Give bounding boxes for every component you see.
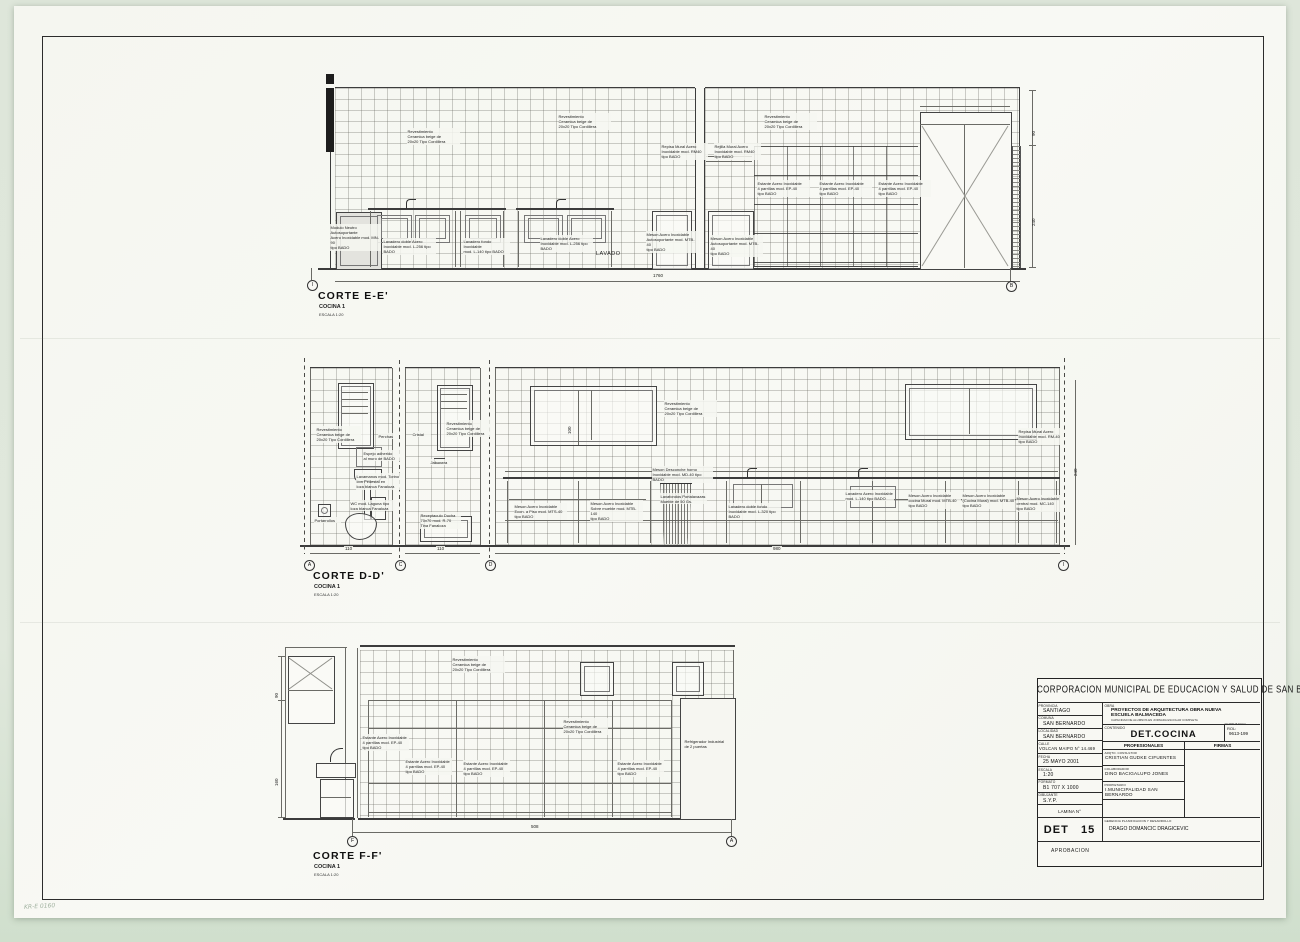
field-value: S.Y.P.: [1037, 797, 1102, 803]
dimension-value: 1760: [652, 273, 664, 278]
field-fecha: FECHA 25 MAYO 2001: [1037, 754, 1103, 767]
counter-leg: [726, 481, 727, 543]
organization-name: CORPORACION MUNICIPAL DE EDUCACION Y SAL…: [1037, 684, 1260, 695]
window-mullion: [591, 390, 592, 440]
callout: Meson Desconche horno Inoxidable mod. MD…: [652, 466, 713, 483]
window-inner: [584, 666, 610, 692]
counter-leg: [650, 481, 651, 543]
wall-edge-line: [495, 368, 496, 545]
axis-leader: [731, 819, 732, 836]
callout: Repisa Mural Acero Inoxidable mod. RM-40…: [1018, 428, 1063, 445]
dimension-line: [310, 553, 392, 554]
dimension-line: [405, 553, 480, 554]
wall-edge-line: [285, 648, 286, 818]
counter-leg: [800, 481, 801, 543]
dimension-tick: [1029, 267, 1036, 268]
dimension-line: [335, 281, 1020, 282]
scanned-sheet: 1760 90 240 I B CORTE E-E' COCINA 1 ESCA…: [0, 0, 1300, 942]
callout: Estante Acero Inoxidable 4 parrillas mod…: [819, 180, 872, 197]
grid-axis-bubble: D: [485, 560, 496, 571]
dimension-value-wrap: 240: [1078, 462, 1086, 480]
callout: Jabonera: [430, 459, 453, 465]
field-dibujante: DIBUJANTE S.Y.P.: [1037, 793, 1103, 805]
section-room: COCINA 1: [314, 864, 340, 870]
room-name-label: LAVADO: [596, 251, 621, 257]
dimension-value: 90: [274, 693, 279, 698]
axis-leader: [352, 819, 353, 836]
sink-basin-inner: [381, 218, 408, 239]
callout: Portarrollos: [314, 517, 341, 523]
row-propietario: PROPIETARIO I.MUNICIPALIDAD SAN BERNARDO: [1103, 782, 1185, 800]
field-value: SAN BERNARDO: [1037, 733, 1102, 739]
callout: Lavadero Acero Inoxidable mod. L-140 tip…: [845, 490, 894, 501]
field-value: SANTIAGO: [1037, 708, 1102, 714]
callout: Estante Acero Inoxidable 4 parrillas mod…: [463, 760, 510, 777]
aprobacion-label: APROBACION: [1051, 848, 1260, 854]
shelf-post: [612, 700, 613, 817]
aprobacion-cell: APROBACION: [1037, 842, 1260, 865]
section-title: CORTE E-E': [318, 290, 389, 302]
callout: Lavadero doble Acero Inoxidable mod. L-2…: [540, 235, 593, 252]
wall-poche: [326, 74, 334, 84]
contenido-cell: CONTENIDO DET.COCINA: [1103, 725, 1225, 742]
dimension-tick: [1029, 145, 1036, 146]
paper-crease: [20, 622, 1280, 623]
dimension-value-wrap: 240: [1036, 212, 1044, 230]
field-calle: CALLE VOLCAN MAIPO N° 14.469: [1037, 741, 1103, 754]
field-value: 1:20: [1037, 772, 1102, 778]
lamina-number-cell: DET 15: [1037, 818, 1103, 842]
section-room: COCINA 1: [314, 584, 340, 590]
dimension-line: [1075, 380, 1076, 545]
callout: Lavadero doble Acero Inoxidable mod. L-2…: [383, 238, 436, 255]
wall-edge-line: [405, 368, 406, 545]
dimension-value-wrap: 160: [279, 772, 287, 790]
callout: Modulo Neutro Autosoportante Acero Inoxi…: [330, 224, 381, 251]
callout: Revestimiento Ceramica beige de 20x20 Ti…: [764, 113, 817, 130]
wall-top-line: [310, 367, 392, 368]
obra-cell: OBRA PROYECTOS DE ARQUITECTURA OBRA NUEV…: [1103, 703, 1260, 725]
faucet: [747, 468, 757, 478]
wall-shelf: [706, 161, 752, 162]
callout: Lavafondos Portalavazas Mueble de 50 Gs.: [660, 493, 707, 504]
callout: Lavadero fondo Inoxidable mod. L-140 tip…: [463, 238, 510, 255]
grid-axis-bubble: F: [347, 836, 358, 847]
louver-line: [342, 406, 368, 407]
field-value: DINO BACIGALUPO JONES: [1103, 771, 1184, 776]
callout: Meson Acero Inoxidable cocina Mural mod.…: [908, 492, 961, 509]
faucet: [556, 199, 566, 209]
shelf-rail: [368, 783, 672, 784]
dimension-value-wrap: 90: [279, 684, 284, 702]
paper-holder-roll: [321, 507, 328, 514]
faucet: [406, 199, 416, 209]
dimension-value: 100: [567, 426, 572, 434]
row-arqto-consultor: ARQTO. CONSULTOR CRISTIAN GUDKE CIFUENTE…: [1103, 750, 1185, 766]
field-formato: FORMATO B1 707 X 1000: [1037, 780, 1103, 793]
floor-line: [283, 818, 355, 820]
shelf-rail: [368, 700, 672, 701]
callout: Meson Acero Inoxidable central mod. MC-1…: [1016, 495, 1061, 512]
floor-line: [300, 545, 1070, 547]
section-title: CORTE F-F': [313, 850, 383, 862]
callout: Revestimiento Ceramica beige de 20x20 Ti…: [558, 113, 611, 130]
profesionales-header: PROFESIONALES: [1103, 742, 1185, 750]
dimension-tick: [1029, 90, 1036, 91]
dimension-line: [495, 553, 1060, 554]
window-inner: [440, 388, 470, 448]
shelf-rail: [368, 728, 672, 729]
grid-axis-bubble: I: [1058, 560, 1069, 571]
shelf-post: [671, 700, 672, 817]
callout: Revestimiento Ceramica beige de 20x20 Ti…: [563, 718, 608, 735]
callout: Refrigerador Industrial de 2 puertas: [684, 738, 731, 749]
field-localidad: LOCALIDAD SAN BERNARDO: [1037, 729, 1103, 742]
callout: Revestimiento Ceramica beige de 20x20 Ti…: [452, 656, 505, 673]
callout: Lavadero doble fondo Inoxidable mod. L-3…: [728, 503, 781, 520]
callout: Meson Acero Inoxidable Econ. a Piso mod.…: [514, 503, 567, 520]
louver-line: [441, 401, 467, 402]
callout: Revestimiento Ceramica beige de 20x20 Ti…: [316, 426, 361, 443]
louver-line: [342, 392, 368, 393]
empty-cell: [1103, 800, 1185, 818]
field-value: SAN BERNARDO: [1037, 720, 1102, 726]
callout: Cristal: [412, 431, 431, 437]
grid-axis-bubble: B: [1006, 281, 1017, 292]
counter-top: [503, 477, 1060, 479]
window-inner: [676, 666, 700, 692]
shelving-rack: [754, 146, 918, 267]
field-value: 25 MAYO 2001: [1037, 759, 1102, 765]
callout: Estante Acero Inoxidable 4 parrillas mod…: [617, 760, 664, 777]
firmas-header: FIRMAS: [1185, 742, 1260, 750]
counter-leg: [507, 481, 508, 543]
louver-line: [441, 408, 467, 409]
section-scale: ESCALA 1:20: [314, 872, 338, 877]
profesionales-label: PROFESIONALES: [1103, 743, 1184, 748]
callout: Estante Acero Inoxidable 4 parrillas mod…: [757, 180, 810, 197]
dimension-tick: [278, 817, 285, 818]
title-block-header: CORPORACION MUNICIPAL DE EDUCACION Y SAL…: [1037, 678, 1260, 703]
lamina-number: DET 15: [1037, 824, 1102, 836]
wall-edge-line: [480, 368, 481, 545]
field-value: CRISTIAN GUDKE CIFUENTES: [1103, 755, 1184, 760]
wall-edge-line: [357, 648, 358, 818]
refrigerator: [680, 698, 736, 820]
grid-axis-bubble: I: [307, 280, 318, 291]
door-x-brace: [920, 124, 1010, 268]
field-escala: ESCALA 1:20: [1037, 767, 1103, 780]
louver-line: [342, 399, 368, 400]
callout: Revestimiento Ceramica beige de 20x20 Ti…: [446, 420, 491, 437]
wall-edge-line: [1059, 368, 1060, 545]
callout: Meson Acero Inoxidable Autosoportante mo…: [710, 235, 763, 257]
lamina-label: LAMINA N°: [1037, 809, 1102, 814]
callout: Meson Acero Inoxidable Sobre mueble mod.…: [590, 500, 643, 522]
dimension-value: 240: [1031, 218, 1036, 226]
dimension-value: 110: [344, 546, 353, 551]
dimension-line: [352, 832, 731, 833]
callout: Rejilla Mural Acero Inoxidable mod. RM40…: [714, 143, 761, 160]
shelf-post: [368, 700, 369, 817]
callout: Estante Acero Inoxidable 4 parrillas mod…: [362, 734, 409, 751]
dimension-line: [1032, 90, 1033, 268]
section-scale: ESCALA 1:20: [319, 312, 343, 317]
callout: Repisa Mural Acero Inoxidable mod. RM40 …: [661, 143, 708, 160]
door-lintel-line: [920, 106, 1010, 107]
callout: WC mod. Laguna tipo loza blanca Fanaloza: [350, 500, 395, 511]
counter-leg: [945, 481, 946, 543]
counter-leg: [518, 211, 519, 267]
field-value: VOLCAN MAIPO N° 14.469: [1037, 746, 1102, 751]
axis-leader: [311, 268, 312, 280]
field-comuna: COMUNA SAN BERNARDO: [1037, 716, 1103, 729]
wall-edge-line: [704, 88, 705, 268]
counter-top: [458, 208, 506, 210]
callout: Receptaculo Ducha 70x70 mod. R-70 Tina F…: [420, 512, 461, 529]
callout: Revestimiento Ceramica beige de 20x20 Ti…: [664, 400, 717, 417]
section-cut-line: [304, 358, 305, 554]
wall-hatch: [1012, 146, 1021, 268]
backsplash-line: [505, 471, 1058, 472]
section-title: CORTE D-D': [313, 570, 385, 582]
wall-top-line: [705, 87, 1020, 88]
sink-basin-inner: [419, 218, 446, 239]
dimension-value: 110: [436, 546, 445, 551]
sink-basin-inner: [469, 218, 497, 239]
counter-leg: [1018, 481, 1019, 543]
counter-leg: [455, 211, 456, 267]
axis-leader: [1010, 268, 1011, 281]
callout: Estante Acero Inoxidable 4 parrillas mod…: [405, 758, 452, 775]
grid-axis-bubble: A: [726, 836, 737, 847]
paper-crease: [20, 338, 1280, 339]
window-inner: [534, 390, 653, 442]
firmas-label: FIRMAS: [1185, 743, 1260, 748]
wall-top-line: [360, 645, 735, 647]
sink-basin: [316, 763, 356, 778]
dimension-line: [281, 656, 282, 818]
section-cut-line: [489, 360, 490, 558]
floor-line: [358, 818, 735, 820]
counter-leg: [460, 211, 461, 267]
callout: Revestimiento Ceramica beige de 20x20 Ti…: [407, 128, 460, 145]
dimension-value: 240: [1073, 468, 1078, 476]
contenido-value: DET.COCINA: [1103, 729, 1224, 740]
sink-cabinet: [320, 779, 354, 818]
dimension-value: 160: [274, 778, 279, 786]
shelf-post: [456, 700, 457, 817]
counter-leg: [1056, 481, 1057, 543]
gerencia-cell: GERENCIA PLANIFICACION Y DESARROLLO DRAG…: [1103, 818, 1260, 842]
callout: Espejo adherido al muro de BADO: [363, 450, 402, 461]
section-scale: ESCALA 1:20: [314, 592, 338, 597]
louver-line: [342, 413, 368, 414]
callout: Estante Acero Inoxidable 4 parrillas mod…: [878, 180, 931, 197]
gerencia-value: DRAGO DOMANCIC DRAGICEVIC: [1103, 823, 1260, 832]
row-colaborador: COLABORADOR DINO BACIGALUPO JONES: [1103, 766, 1185, 782]
field-provincia: PROVINCIA SANTIAGO: [1037, 703, 1103, 716]
wall-edge-line: [310, 368, 311, 545]
wall-top-line: [285, 647, 347, 648]
rol-cell: ROL: 9613-199: [1225, 725, 1260, 742]
counter-leg: [578, 481, 579, 543]
section-room: COCINA 1: [319, 304, 345, 310]
counter-leg: [611, 211, 612, 267]
dimension-value: 90: [1031, 131, 1036, 136]
wall-top-line: [335, 87, 695, 88]
dimension-value-wrap: 100: [572, 420, 580, 438]
wall-poche: [326, 88, 334, 152]
callout: Meson Acero Inoxidable (Cocina Mural) mo…: [962, 492, 1015, 509]
dimension-value: 980: [772, 546, 782, 551]
callout: Lavamanos mod. Torino con Pedestal en lo…: [356, 473, 403, 490]
callout: Perchas: [378, 433, 399, 439]
grid-axis-bubble: C: [395, 560, 406, 571]
dimension-value-wrap: 90: [1036, 122, 1041, 140]
dimension-value: 508: [530, 824, 540, 829]
field-value: B1 707 X 1000: [1037, 784, 1102, 790]
shelf-rail: [368, 812, 672, 813]
dimension-tick: [278, 656, 285, 657]
counter-shelf-line: [505, 520, 1058, 521]
section-cut-line: [1064, 358, 1065, 554]
faucet: [858, 468, 868, 478]
callout: Meson Acero Inoxidable Autosoportante mo…: [646, 231, 699, 253]
open-sash-lines: [288, 656, 333, 690]
louver-line: [441, 394, 467, 395]
wall-top-line: [495, 367, 1060, 368]
lamina-label-cell: LAMINA N°: [1037, 805, 1103, 818]
window-inner: [909, 388, 1033, 436]
firmas-empty-column: [1185, 750, 1260, 818]
window-mid-line: [288, 690, 333, 691]
field-value: I.MUNICIPALIDAD SAN BERNARDO: [1103, 787, 1184, 797]
shelf-post: [544, 700, 545, 817]
rol-value: 9613-199: [1225, 731, 1260, 736]
wall-top-line: [405, 367, 480, 368]
window-mullion: [969, 388, 970, 434]
cabinet-shelf-line: [321, 797, 351, 798]
